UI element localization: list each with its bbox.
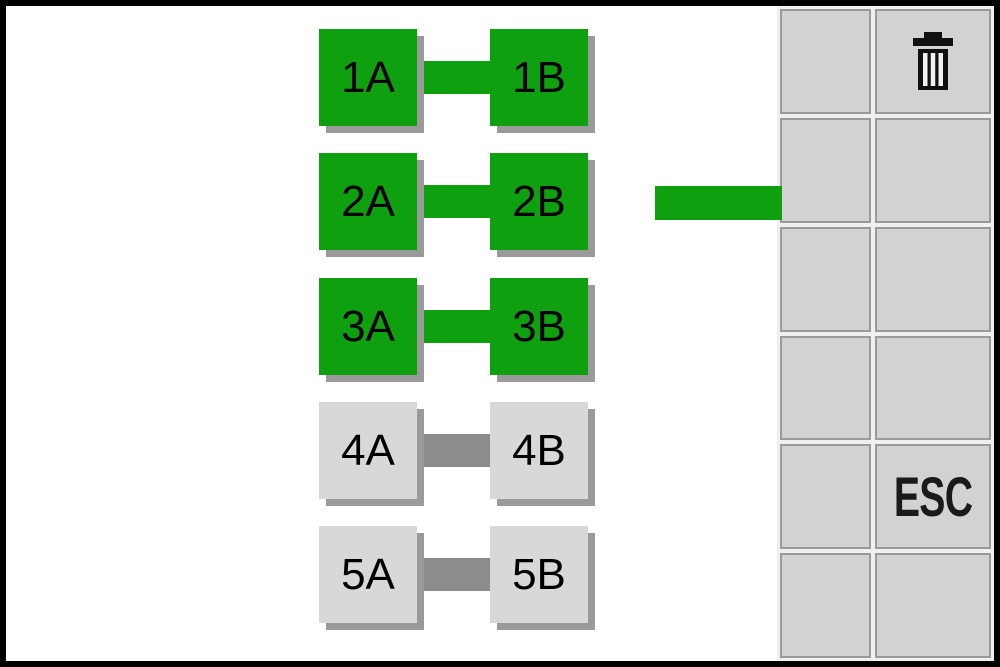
pair-3: 3A 3B: [319, 278, 590, 375]
block-3a-label: 3A: [341, 305, 395, 349]
block-2a-label: 2A: [341, 180, 395, 224]
block-4b[interactable]: 4B: [490, 402, 588, 499]
panel-slot[interactable]: [780, 227, 871, 332]
panel-slot[interactable]: [875, 227, 991, 332]
loose-connector[interactable]: [655, 186, 782, 220]
pair-2-connector[interactable]: [415, 185, 495, 218]
trash-cell[interactable]: [875, 9, 991, 114]
pair-2: 2A 2B: [319, 153, 590, 250]
block-2b[interactable]: 2B: [490, 153, 588, 250]
esc-cell[interactable]: ESC: [875, 444, 991, 549]
block-3b[interactable]: 3B: [490, 278, 588, 375]
block-4b-label: 4B: [512, 429, 566, 473]
pair-5-connector[interactable]: [415, 558, 495, 591]
block-5a[interactable]: 5A: [319, 526, 417, 623]
block-5b-label: 5B: [512, 553, 566, 597]
block-5b[interactable]: 5B: [490, 526, 588, 623]
panel-slot[interactable]: [780, 553, 871, 658]
app-window: 1A 1B 2A 2B 3A 3B 4A 4B: [0, 0, 1000, 667]
block-1b-label: 1B: [512, 56, 566, 100]
pair-3-connector[interactable]: [415, 310, 495, 343]
trash-icon: [911, 32, 955, 90]
block-3a[interactable]: 3A: [319, 278, 417, 375]
side-panel: ESC: [777, 6, 994, 661]
block-1b[interactable]: 1B: [490, 29, 588, 126]
block-4a[interactable]: 4A: [319, 402, 417, 499]
block-4a-label: 4A: [341, 429, 395, 473]
panel-slot[interactable]: [780, 9, 871, 114]
block-5a-label: 5A: [341, 553, 395, 597]
panel-slot[interactable]: [875, 336, 991, 441]
pair-4-connector[interactable]: [415, 434, 495, 467]
panel-slot[interactable]: [875, 553, 991, 658]
panel-slot[interactable]: [780, 118, 871, 223]
block-1a-label: 1A: [341, 56, 395, 100]
panel-slot[interactable]: [875, 118, 991, 223]
panel-slot[interactable]: [780, 336, 871, 441]
block-2a[interactable]: 2A: [319, 153, 417, 250]
pair-1: 1A 1B: [319, 29, 590, 126]
pair-1-connector[interactable]: [415, 61, 495, 94]
block-2b-label: 2B: [512, 180, 566, 224]
block-3b-label: 3B: [512, 305, 566, 349]
esc-label: ESC: [894, 469, 973, 525]
pair-5: 5A 5B: [319, 526, 590, 623]
block-1a[interactable]: 1A: [319, 29, 417, 126]
pair-4: 4A 4B: [319, 402, 590, 499]
panel-slot[interactable]: [780, 444, 871, 549]
